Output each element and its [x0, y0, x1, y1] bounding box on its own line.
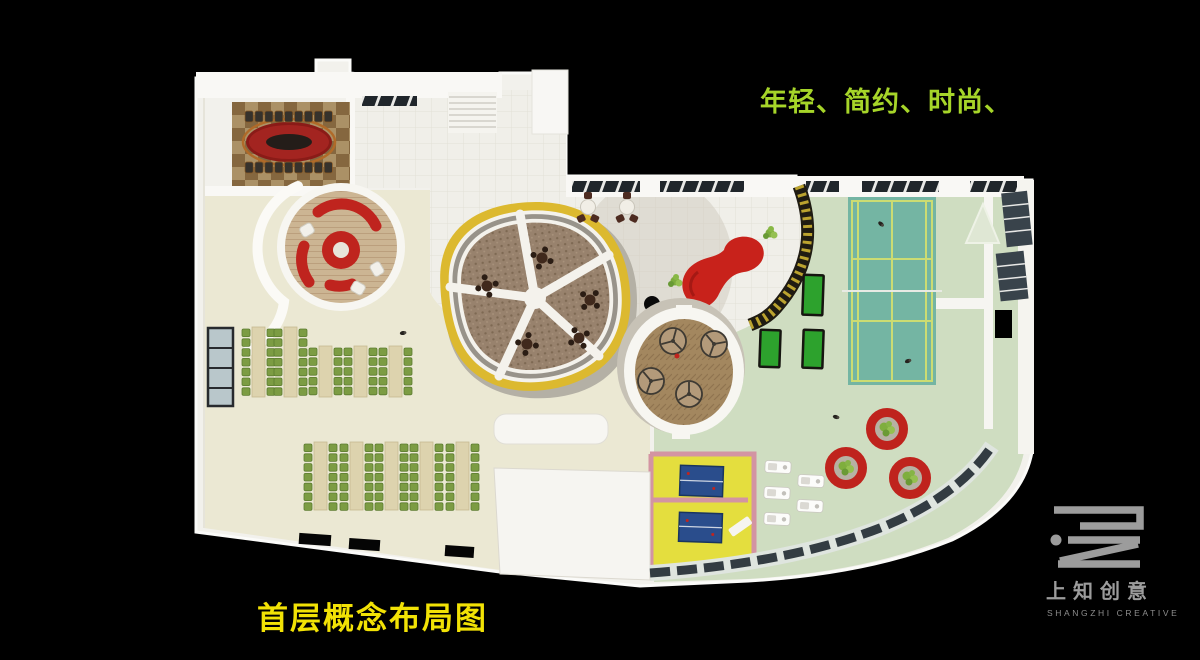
logo-name-cn: 上知创意 — [1046, 575, 1188, 604]
logo-name-en: SHANGZHI CREATIVE — [1047, 608, 1188, 618]
stairs — [448, 92, 497, 133]
conference-room — [232, 102, 350, 186]
red-sofa-arc-3 — [330, 284, 352, 286]
plan-title-caption: 首层概念布局图 — [257, 593, 488, 638]
pingpong-room — [650, 452, 754, 568]
left-window — [208, 328, 233, 406]
right-window-2 — [996, 251, 1029, 302]
brand-logo: 上知创意 SHANGZHI CREATIVE — [1038, 503, 1188, 618]
conference-chairs-bottom — [245, 162, 332, 173]
presentation-slide: 年轻、简约、时尚、 首层概念布局图 上知创意 SHANGZHI CREATIVE — [0, 0, 1200, 660]
service-block — [494, 468, 650, 580]
white-platform — [494, 414, 608, 444]
logo-mark-icon — [1046, 503, 1150, 569]
badminton-court — [842, 197, 942, 385]
style-keywords-caption: 年轻、简约、时尚、 — [760, 80, 1180, 119]
conference-chairs-top — [245, 111, 332, 122]
door-opening — [995, 310, 1012, 338]
